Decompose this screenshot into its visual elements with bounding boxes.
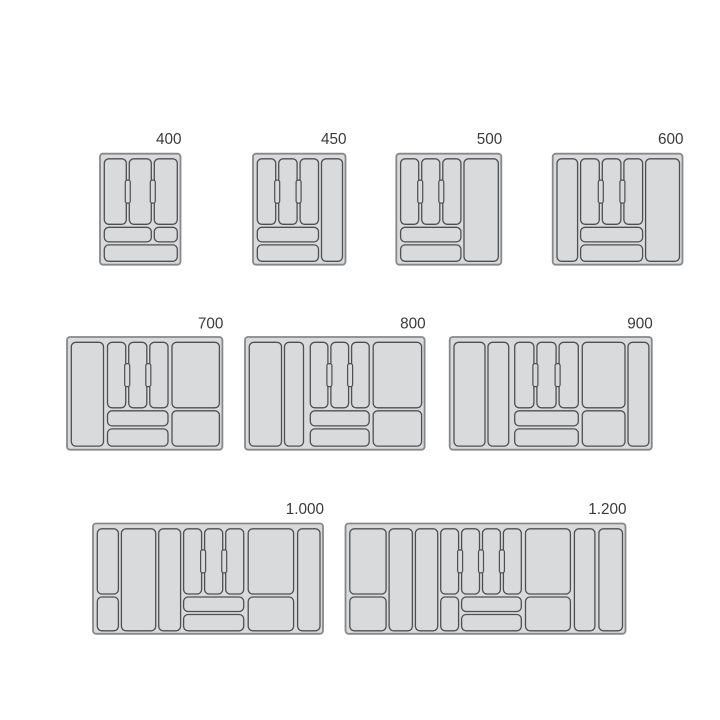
- svg-text:700: 700: [198, 315, 224, 332]
- svg-text:800: 800: [400, 315, 426, 332]
- svg-text:600: 600: [658, 131, 684, 148]
- svg-text:500: 500: [477, 131, 503, 148]
- svg-text:1.200: 1.200: [588, 501, 626, 518]
- svg-text:400: 400: [156, 131, 182, 148]
- svg-text:900: 900: [627, 315, 653, 332]
- svg-text:1.000: 1.000: [286, 501, 324, 518]
- svg-text:450: 450: [321, 131, 347, 148]
